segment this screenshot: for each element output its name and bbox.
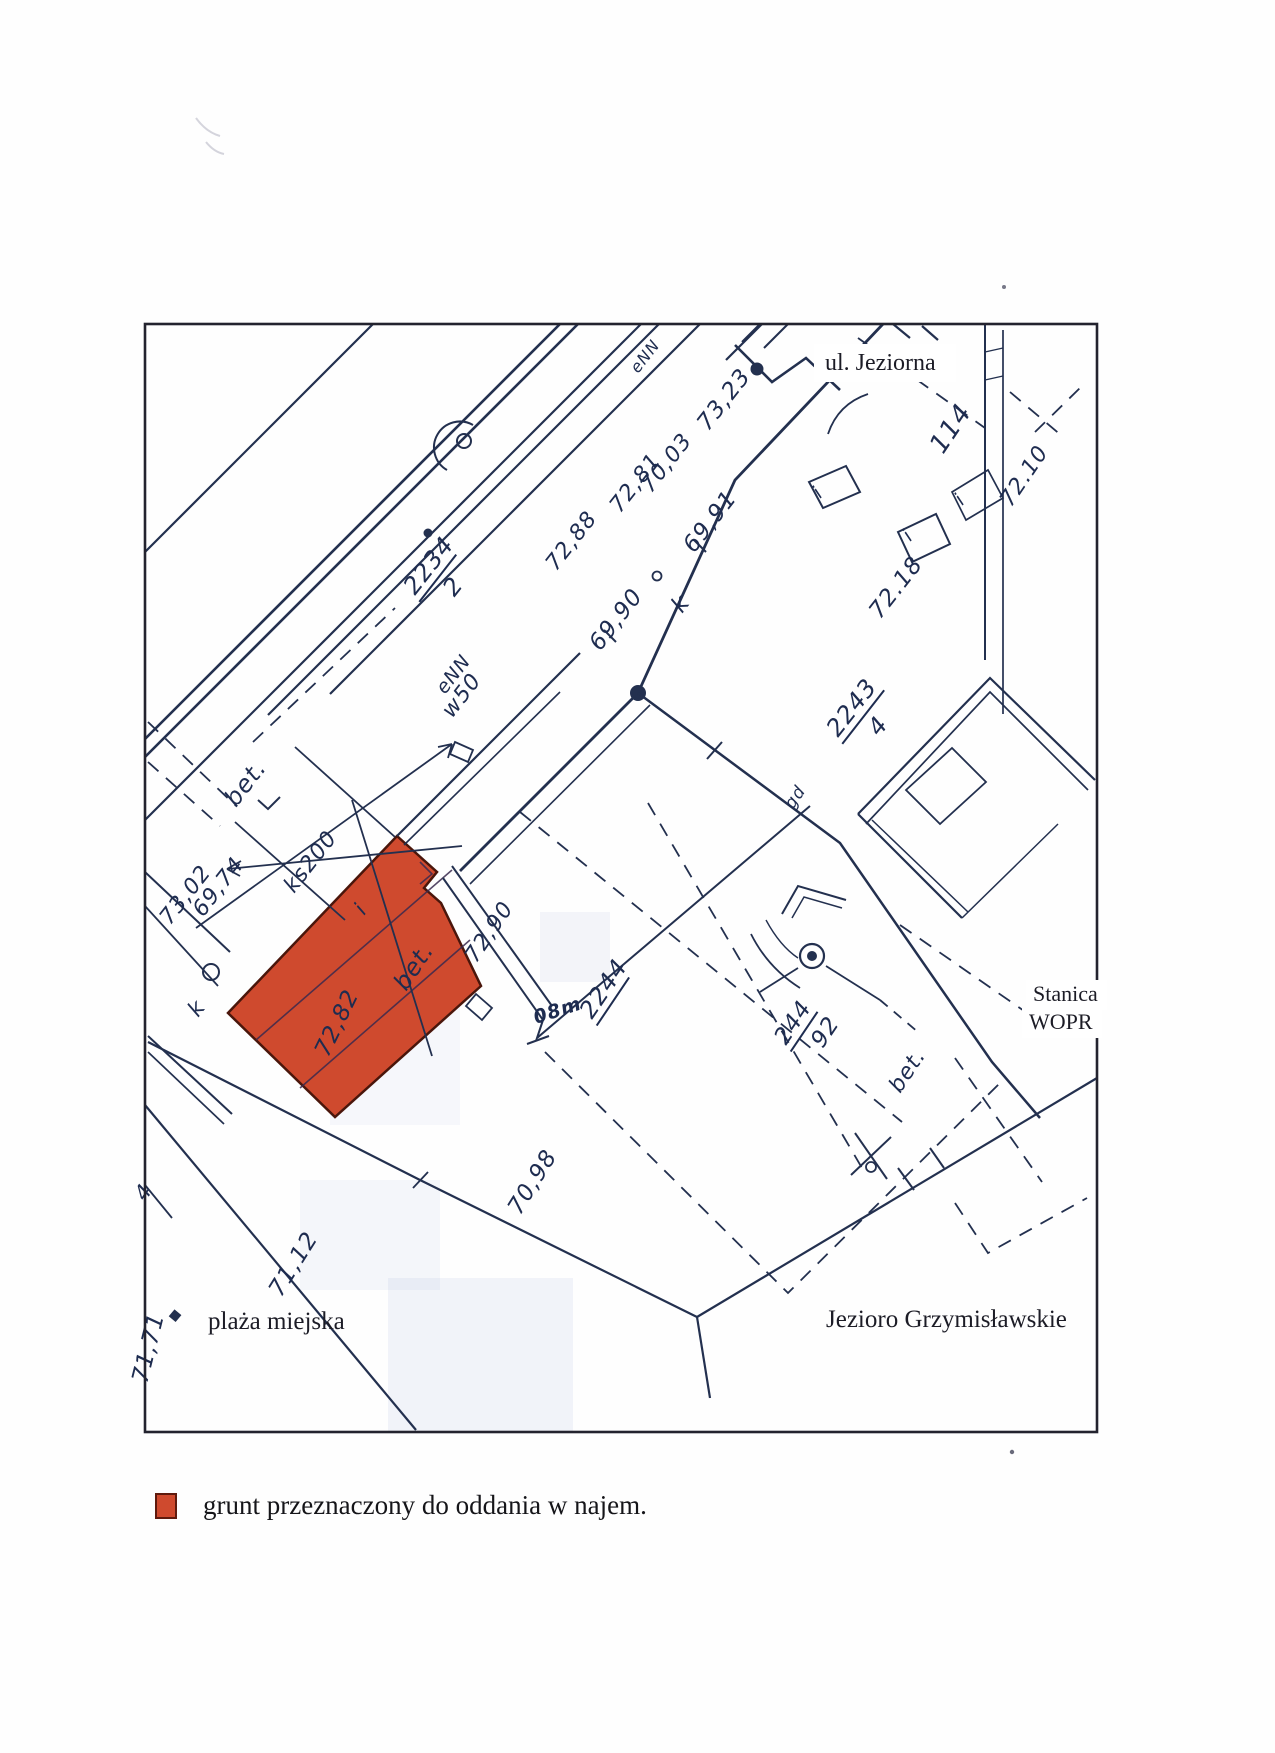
survey-annotation: 22434 xyxy=(819,672,908,763)
lake-label-text: Jezioro Grzymisławskie xyxy=(826,1306,1067,1333)
survey-annotation: 4 xyxy=(129,1179,157,1205)
scanned-page: 223422243422442449272,8872,8170,0373,236… xyxy=(0,0,1275,1753)
svg-text:4: 4 xyxy=(129,1179,157,1205)
scan-dot xyxy=(1002,285,1006,289)
svg-text:4: 4 xyxy=(862,711,894,741)
svg-text:114: 114 xyxy=(924,398,978,458)
wopr-text: WOPR xyxy=(1029,1009,1093,1034)
survey-marker-x xyxy=(851,1133,891,1179)
legend-label: grunt przeznaczony do oddania w najem. xyxy=(203,1490,647,1521)
svg-text:70,98: 70,98 xyxy=(503,1145,563,1219)
svg-text:08m: 08m xyxy=(531,993,585,1029)
stanica-text: Stanica xyxy=(1033,981,1098,1006)
svg-text:73,23: 73,23 xyxy=(692,364,756,436)
survey-annotation: 72,90 xyxy=(460,897,519,967)
svg-text:72.18: 72.18 xyxy=(864,552,928,624)
svg-text:72,90: 72,90 xyxy=(460,897,519,967)
stanica-label-line1: Stanica xyxy=(1026,980,1107,1010)
svg-text:k: k xyxy=(183,995,211,1021)
survey-annotation: 73,23 xyxy=(692,364,756,436)
svg-text:eNN: eNN xyxy=(626,336,664,377)
svg-text:69,90: 69,90 xyxy=(584,584,648,656)
survey-annotation: 114 xyxy=(924,398,978,458)
scan-dot xyxy=(1010,1450,1014,1454)
survey-annotation: 72.10 xyxy=(995,441,1054,511)
svg-text:2: 2 xyxy=(437,571,469,601)
svg-text:bet.: bet. xyxy=(219,754,272,811)
svg-text:k: k xyxy=(666,590,696,618)
survey-annotation: 08m xyxy=(531,993,585,1029)
legend-swatch xyxy=(155,1493,177,1519)
survey-annotation: bet. xyxy=(219,754,272,811)
legend: grunt przeznaczony do oddania w najem. xyxy=(155,1490,647,1521)
survey-annotation: 72,88 xyxy=(541,507,603,576)
svg-text:bet.: bet. xyxy=(884,1044,931,1097)
survey-annotation: 24492 xyxy=(768,994,845,1069)
dashed-boundaries xyxy=(148,338,1087,1293)
street-label: ul. Jeziorna xyxy=(818,348,945,380)
beach-label-text: plaża miejska xyxy=(208,1308,345,1335)
svg-text:69,91: 69,91 xyxy=(678,486,742,558)
survey-annotation: i xyxy=(898,526,918,546)
beach-label: plaża miejska xyxy=(208,1308,345,1336)
well-symbol xyxy=(751,886,918,1032)
survey-annotation: gd xyxy=(781,782,811,813)
survey-annotation: eNN xyxy=(626,336,664,377)
survey-annotation: 71,71 xyxy=(128,1310,170,1385)
survey-annotation: 72.18 xyxy=(864,552,928,624)
road-lines xyxy=(145,324,883,884)
building-outlines-right xyxy=(858,324,1095,918)
survey-annotation: 22342 xyxy=(396,531,485,621)
survey-annotation: k xyxy=(666,590,696,618)
survey-annotation: 69,90 xyxy=(584,584,648,656)
lake-label: Jezioro Grzymisławskie xyxy=(826,1306,1067,1334)
stanica-label-line2: WOPR xyxy=(1022,1008,1102,1038)
svg-text:72,88: 72,88 xyxy=(541,507,603,576)
survey-annotation: k xyxy=(183,995,211,1021)
survey-annotation: 69,91 xyxy=(678,486,742,558)
street-label-text: ul. Jeziorna xyxy=(825,350,936,376)
svg-text:i: i xyxy=(898,526,918,546)
scan-artifacts xyxy=(196,118,224,154)
survey-annotation: 70,98 xyxy=(503,1145,563,1219)
svg-text:72.10: 72.10 xyxy=(995,441,1054,511)
shoreline xyxy=(148,1042,1097,1398)
survey-annotation: bet. xyxy=(884,1044,931,1097)
svg-text:gd: gd xyxy=(781,782,811,813)
svg-text:71,71: 71,71 xyxy=(128,1310,170,1385)
